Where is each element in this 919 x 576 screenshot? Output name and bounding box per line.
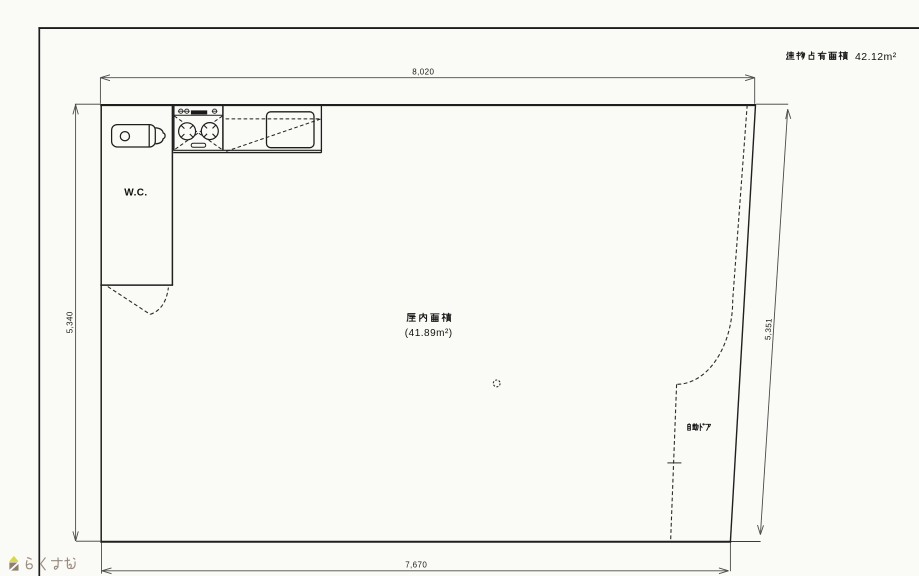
svg-text:8,020: 8,020 <box>412 68 434 77</box>
svg-text:7,670: 7,670 <box>405 561 427 570</box>
svg-text:5,351: 5,351 <box>763 318 773 341</box>
svg-text:W.C.: W.C. <box>124 187 147 198</box>
svg-text:5,340: 5,340 <box>66 311 75 333</box>
svg-text:42.12m²: 42.12m² <box>855 51 897 63</box>
svg-text:(41.89m²): (41.89m²) <box>405 328 453 339</box>
